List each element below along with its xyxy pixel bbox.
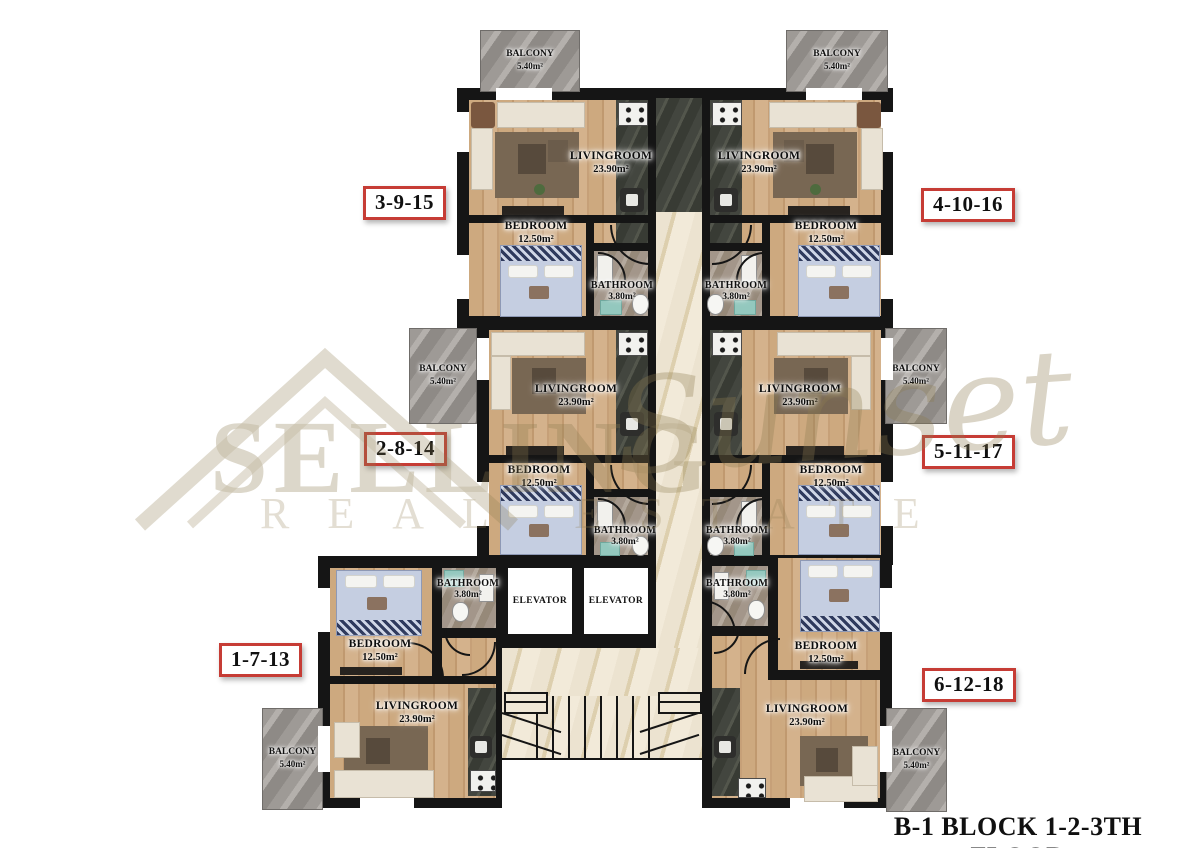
bed bbox=[798, 245, 880, 317]
sofa bbox=[497, 102, 585, 128]
armchair bbox=[852, 746, 878, 786]
pillow bbox=[544, 265, 574, 278]
cushion bbox=[829, 589, 849, 602]
cushion bbox=[367, 597, 387, 610]
bed-header bbox=[337, 620, 421, 635]
window bbox=[880, 588, 892, 632]
sink-icon bbox=[620, 412, 644, 436]
corridor-landing bbox=[502, 648, 702, 696]
bed bbox=[798, 485, 880, 555]
tv-console bbox=[506, 446, 564, 455]
tv-console bbox=[340, 667, 402, 675]
sofa bbox=[777, 332, 871, 356]
sofa bbox=[491, 332, 585, 356]
sink-icon bbox=[714, 188, 738, 212]
window bbox=[318, 588, 330, 632]
unit-tag-middle-right: 5-11-17 bbox=[922, 435, 1015, 469]
armchair bbox=[471, 102, 495, 128]
balcony-label: BALCONY5.40m² bbox=[481, 31, 579, 91]
floorplan-canvas: BALCONY5.40m² BALCONY5.40m² BALCONY5.40m… bbox=[0, 0, 1200, 848]
unit-tag-bottom-right: 6-12-18 bbox=[922, 668, 1016, 702]
unit-tag-top-left: 3-9-15 bbox=[363, 186, 446, 220]
balcony-bottom-left: BALCONY5.40m² bbox=[262, 708, 323, 810]
balcony-label: BALCONY5.40m² bbox=[886, 329, 946, 423]
balcony-door bbox=[477, 338, 489, 380]
stove-icon bbox=[618, 102, 648, 126]
bed bbox=[336, 570, 422, 636]
elevator-label: ELEVATOR bbox=[589, 596, 643, 606]
room-label-bedroom: BEDROOM12.50m² bbox=[508, 464, 571, 490]
room-label-bathroom: BATHROOM3.80m² bbox=[706, 525, 768, 548]
pillow bbox=[843, 565, 873, 578]
room-label-livingroom: LIVINGROOM23.90m² bbox=[570, 150, 652, 176]
room-label-bathroom: BATHROOM3.80m² bbox=[706, 578, 768, 601]
sofa bbox=[769, 102, 857, 128]
room-label-livingroom: LIVINGROOM23.90m² bbox=[766, 703, 848, 729]
balcony-top-left: BALCONY5.40m² bbox=[480, 30, 580, 92]
toilet bbox=[452, 602, 469, 622]
balcony-label: BALCONY5.40m² bbox=[263, 709, 322, 809]
toilet bbox=[748, 600, 765, 620]
coffee-table bbox=[518, 144, 546, 174]
corridor-kitchen-tiles bbox=[656, 98, 702, 212]
armchair bbox=[857, 102, 881, 128]
pillow bbox=[383, 575, 415, 588]
tv-console bbox=[786, 446, 844, 455]
coffee-table bbox=[816, 748, 838, 772]
sink-icon bbox=[620, 188, 644, 212]
stairs bbox=[536, 696, 664, 758]
sofa bbox=[851, 356, 871, 410]
elevator-label: ELEVATOR bbox=[513, 596, 567, 606]
balcony-door bbox=[496, 88, 552, 100]
tv-console bbox=[788, 206, 850, 215]
window bbox=[881, 255, 893, 299]
balcony-door bbox=[806, 88, 862, 100]
plant bbox=[534, 184, 545, 195]
stair-rail bbox=[658, 701, 702, 714]
pillow bbox=[808, 565, 838, 578]
coffee-table bbox=[806, 144, 834, 174]
balcony-top-right: BALCONY5.40m² bbox=[786, 30, 888, 92]
unit-tag-bottom-left: 1-7-13 bbox=[219, 643, 302, 677]
window bbox=[457, 255, 469, 299]
pillow bbox=[806, 265, 836, 278]
stove-icon bbox=[470, 770, 496, 792]
window bbox=[360, 798, 414, 808]
wall bbox=[710, 455, 881, 463]
stove-icon bbox=[618, 332, 648, 356]
plan-title: B-1 BLOCK 1-2-3TH FLOOR bbox=[868, 812, 1168, 848]
pillow bbox=[345, 575, 377, 588]
sofa bbox=[334, 770, 434, 798]
room-label-livingroom: LIVINGROOM23.90m² bbox=[376, 700, 458, 726]
cushion bbox=[529, 524, 549, 537]
cushion bbox=[829, 286, 849, 299]
sofa bbox=[491, 356, 511, 410]
pillow bbox=[806, 505, 836, 518]
pillow bbox=[842, 505, 872, 518]
coffee-table bbox=[366, 738, 390, 764]
room-label-bedroom: BEDROOM12.50m² bbox=[800, 464, 863, 490]
wall bbox=[489, 455, 648, 463]
stove-icon bbox=[712, 102, 742, 126]
room-label-bathroom: BATHROOM3.80m² bbox=[594, 525, 656, 548]
stove-icon bbox=[738, 778, 766, 798]
balcony-bottom-right: BALCONY5.40m² bbox=[886, 708, 947, 812]
sofa bbox=[861, 128, 883, 190]
stair-rail bbox=[504, 701, 548, 714]
bed-header bbox=[501, 246, 581, 261]
room-label-bedroom: BEDROOM12.50m² bbox=[349, 638, 412, 664]
bed-header bbox=[801, 616, 879, 631]
balcony-label: BALCONY5.40m² bbox=[787, 31, 887, 91]
balcony-door bbox=[880, 726, 892, 772]
room-label-bedroom: BEDROOM12.50m² bbox=[795, 640, 858, 666]
plant bbox=[810, 184, 821, 195]
bed bbox=[500, 485, 582, 555]
room-label-livingroom: LIVINGROOM23.90m² bbox=[718, 150, 800, 176]
balcony-middle-left: BALCONY5.40m² bbox=[409, 328, 477, 424]
stair-void bbox=[502, 760, 702, 808]
room-label-bathroom: BATHROOM3.80m² bbox=[705, 280, 767, 303]
window bbox=[457, 112, 469, 152]
sink-icon bbox=[714, 736, 736, 758]
elevator-left: ELEVATOR bbox=[508, 568, 572, 634]
room-label-livingroom: LIVINGROOM23.90m² bbox=[759, 383, 841, 409]
window bbox=[881, 482, 893, 526]
balcony-door bbox=[881, 338, 893, 380]
sink-icon bbox=[714, 412, 738, 436]
stove-icon bbox=[712, 332, 742, 356]
room-label-bedroom: BEDROOM12.50m² bbox=[505, 220, 568, 246]
cushion bbox=[829, 524, 849, 537]
wall bbox=[770, 670, 880, 680]
pillow bbox=[544, 505, 574, 518]
pillow bbox=[508, 265, 538, 278]
balcony-label: BALCONY5.40m² bbox=[410, 329, 476, 423]
wall bbox=[586, 463, 594, 555]
bed-header bbox=[799, 246, 879, 261]
side-table bbox=[548, 140, 568, 162]
unit-tag-top-right: 4-10-16 bbox=[921, 188, 1015, 222]
balcony-door bbox=[318, 726, 330, 772]
unit-tag-middle-left: 2-8-14 bbox=[364, 432, 447, 466]
elevator-right: ELEVATOR bbox=[584, 568, 648, 634]
cushion bbox=[529, 286, 549, 299]
room-label-bathroom: BATHROOM3.80m² bbox=[591, 280, 653, 303]
bed bbox=[800, 560, 880, 632]
corridor-floor bbox=[656, 212, 702, 648]
sofa bbox=[471, 128, 493, 190]
room-label-bathroom: BATHROOM3.80m² bbox=[437, 578, 499, 601]
armchair bbox=[334, 722, 360, 758]
tv-console bbox=[502, 206, 564, 215]
balcony-label: BALCONY5.40m² bbox=[887, 709, 946, 811]
room-label-bedroom: BEDROOM12.50m² bbox=[795, 220, 858, 246]
bed bbox=[500, 245, 582, 317]
room-label-livingroom: LIVINGROOM23.90m² bbox=[535, 383, 617, 409]
pillow bbox=[508, 505, 538, 518]
window bbox=[477, 482, 489, 526]
balcony-middle-right: BALCONY5.40m² bbox=[885, 328, 947, 424]
sink-icon bbox=[470, 736, 492, 758]
pillow bbox=[842, 265, 872, 278]
